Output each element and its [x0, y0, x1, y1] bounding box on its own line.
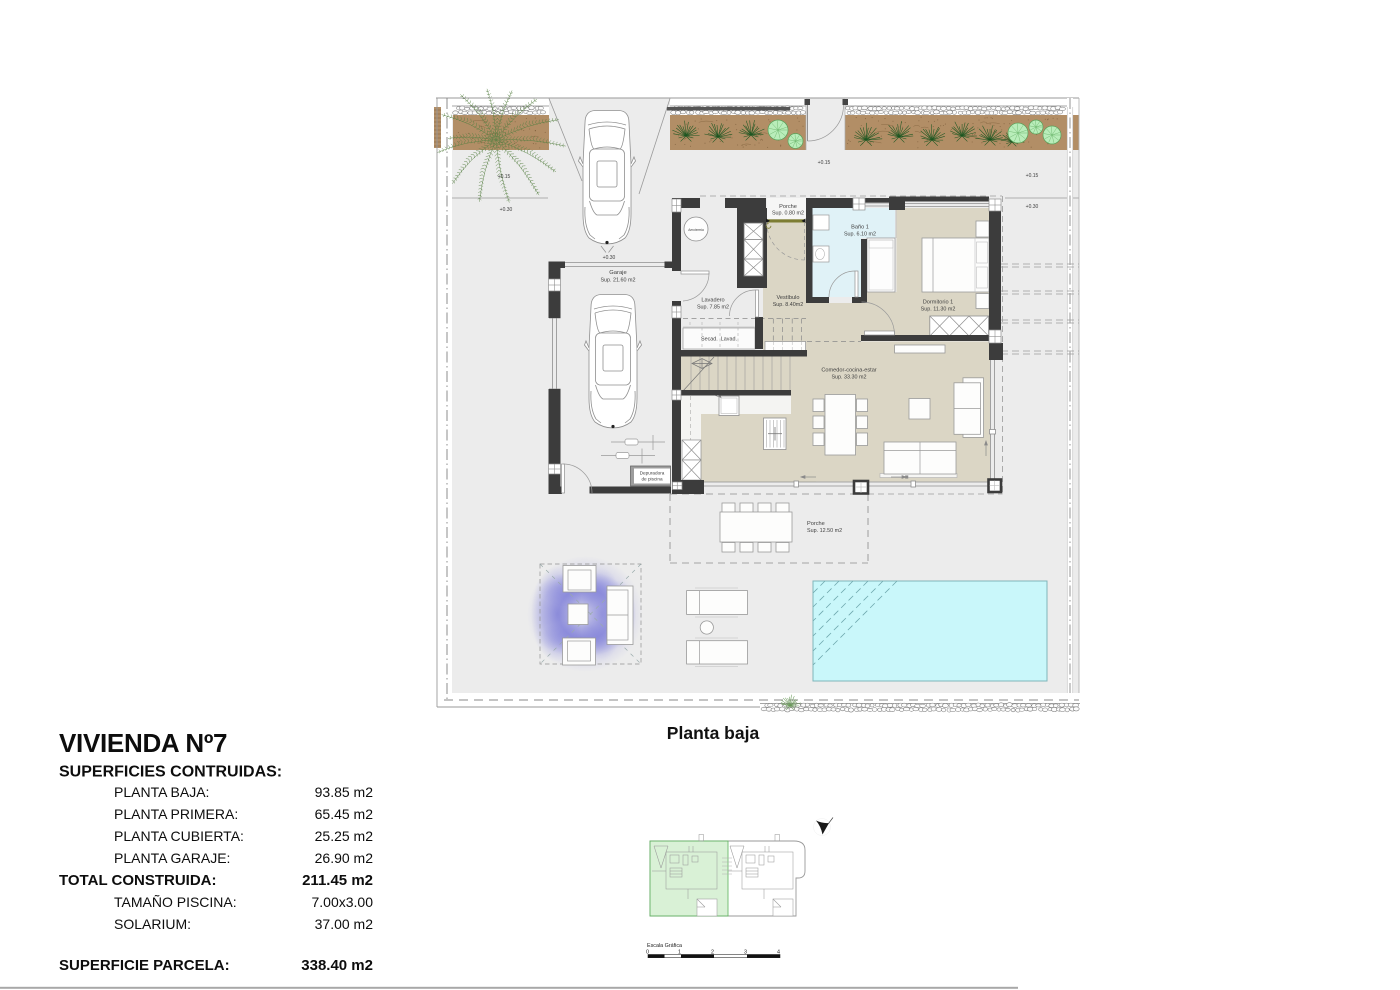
svg-text:Sup. 7.85 m2: Sup. 7.85 m2 — [697, 305, 729, 311]
svg-text:Sup. 33.30 m2: Sup. 33.30 m2 — [831, 375, 866, 381]
svg-text:+0.15: +0.15 — [818, 160, 831, 166]
svg-text:Sup. 6.10 m2: Sup. 6.10 m2 — [844, 232, 876, 238]
svg-text:37.00 m2: 37.00 m2 — [315, 916, 374, 932]
svg-text:Sup. 11.30 m2: Sup. 11.30 m2 — [921, 307, 956, 313]
svg-text:SUPERFICIES CONTRUIDAS:: SUPERFICIES CONTRUIDAS: — [59, 764, 282, 781]
svg-text:Garaje: Garaje — [609, 270, 626, 276]
svg-text:Aerotermia: Aerotermia — [688, 228, 704, 232]
svg-text:Secad. Lavad.: Secad. Lavad. — [701, 337, 737, 343]
svg-text:Depuradora: Depuradora — [640, 471, 665, 476]
svg-text:Sup. 8.40m2: Sup. 8.40m2 — [773, 302, 804, 308]
svg-text:211.45 m2: 211.45 m2 — [302, 872, 373, 889]
svg-text:de piscina: de piscina — [641, 477, 663, 482]
svg-text:PLANTA BAJA:: PLANTA BAJA: — [114, 784, 209, 800]
svg-text:Vestíbulo: Vestíbulo — [776, 295, 799, 301]
svg-text:25.25 m2: 25.25 m2 — [315, 828, 374, 844]
svg-text:Sup. 21.60 m2: Sup. 21.60 m2 — [600, 278, 635, 284]
svg-text:Lavadero: Lavadero — [701, 298, 724, 304]
svg-text:+0.15: +0.15 — [1026, 173, 1039, 179]
svg-text:93.85 m2: 93.85 m2 — [315, 784, 374, 800]
svg-text:Escala Gráfica: Escala Gráfica — [647, 943, 682, 949]
svg-text:338.40 m2: 338.40 m2 — [301, 957, 373, 974]
svg-text:+0.15: +0.15 — [498, 174, 511, 180]
svg-text:TAMAÑO PISCINA:: TAMAÑO PISCINA: — [114, 894, 237, 910]
svg-text:SOLARIUM:: SOLARIUM: — [114, 916, 191, 932]
svg-text:Porche: Porche — [807, 521, 825, 527]
svg-text:Porche: Porche — [779, 204, 797, 210]
svg-text:VIVIENDA Nº7: VIVIENDA Nº7 — [59, 728, 227, 758]
svg-text:PLANTA PRIMERA:: PLANTA PRIMERA: — [114, 806, 238, 822]
svg-text:65.45 m2: 65.45 m2 — [315, 806, 374, 822]
svg-text:+0.30: +0.30 — [500, 207, 513, 213]
svg-text:Comedor-cocina-estar: Comedor-cocina-estar — [821, 368, 876, 374]
svg-text:Dormitorio 1: Dormitorio 1 — [923, 300, 953, 306]
svg-text:Baño 1: Baño 1 — [851, 225, 869, 231]
svg-text:Sup. 0.80 m2: Sup. 0.80 m2 — [772, 211, 804, 217]
svg-text:SUPERFICIE PARCELA:: SUPERFICIE PARCELA: — [59, 957, 230, 974]
svg-text:+0.30: +0.30 — [1026, 204, 1039, 210]
svg-text:26.90 m2: 26.90 m2 — [315, 850, 374, 866]
svg-text:Sup. 12.50 m2: Sup. 12.50 m2 — [807, 528, 842, 534]
svg-text:TOTAL CONSTRUIDA:: TOTAL CONSTRUIDA: — [59, 872, 217, 889]
svg-text:7.00x3.00: 7.00x3.00 — [312, 894, 374, 910]
svg-text:+0.30: +0.30 — [603, 255, 616, 261]
svg-text:PLANTA GARAJE:: PLANTA GARAJE: — [114, 850, 230, 866]
svg-text:PLANTA CUBIERTA:: PLANTA CUBIERTA: — [114, 828, 244, 844]
svg-text:Planta baja: Planta baja — [667, 723, 760, 743]
